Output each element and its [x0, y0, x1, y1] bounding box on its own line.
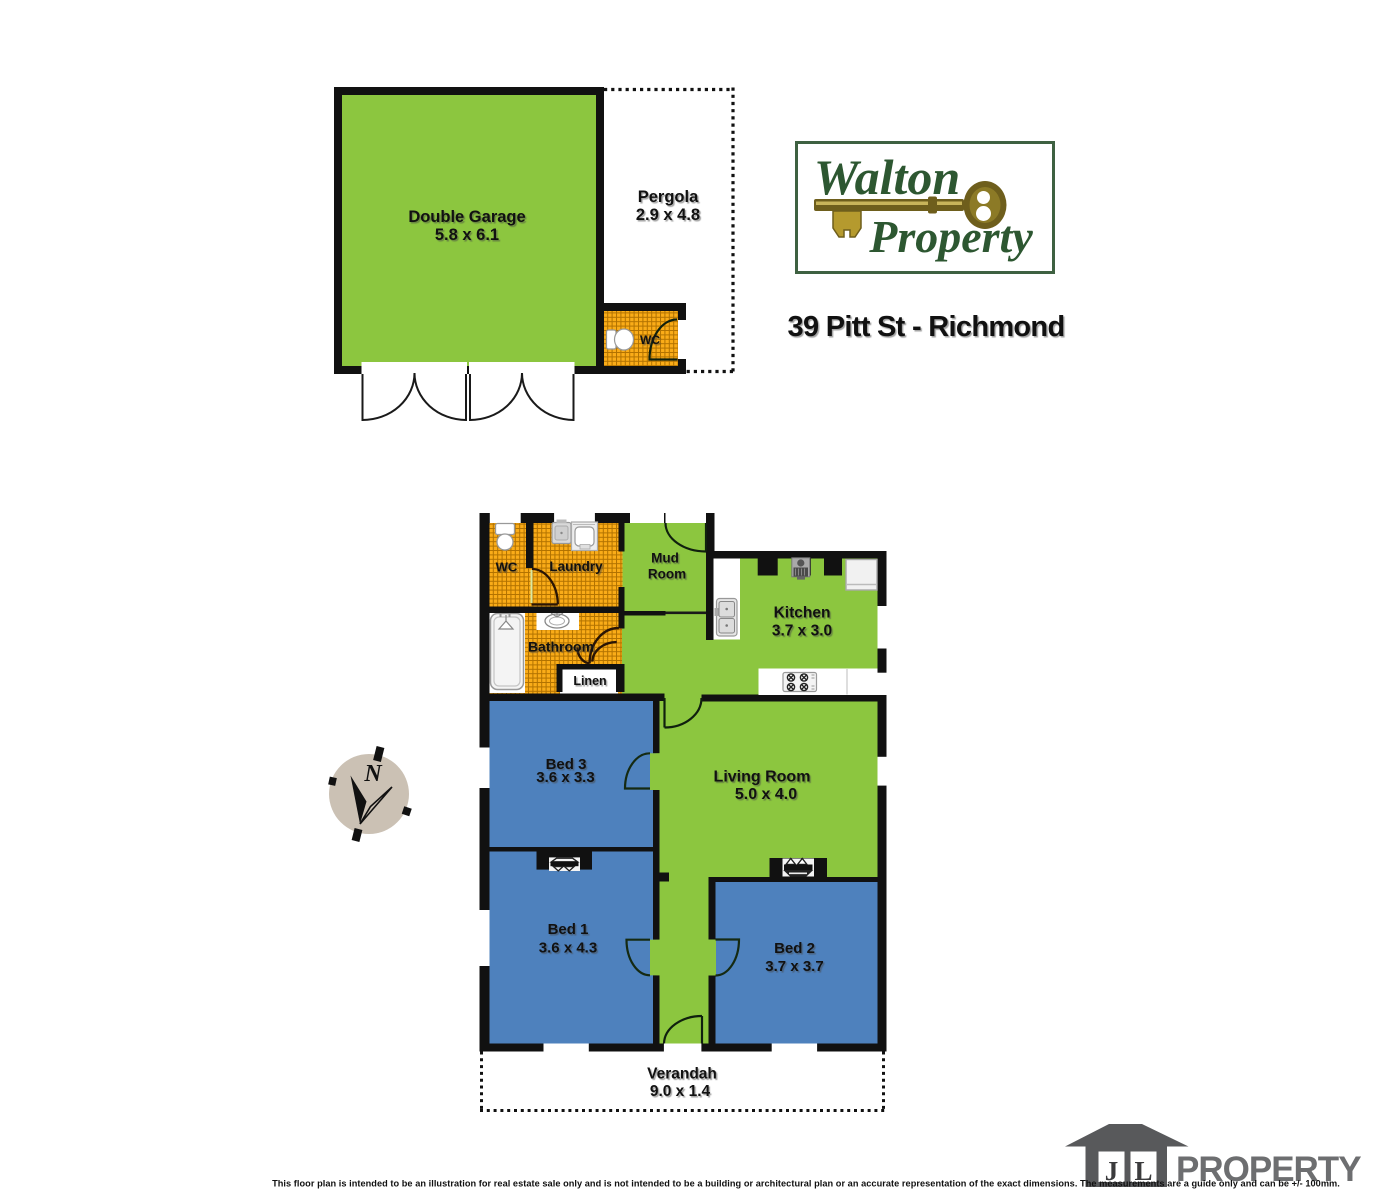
svg-text:3.6 x 4.3: 3.6 x 4.3 [539, 940, 597, 957]
svg-text:5.8 x 6.1: 5.8 x 6.1 [435, 226, 499, 244]
svg-text:Laundry: Laundry [549, 559, 603, 574]
svg-text:3.7 x 3.7: 3.7 x 3.7 [765, 958, 823, 975]
svg-text:Bathroom: Bathroom [528, 639, 594, 655]
svg-text:2.9 x 4.8: 2.9 x 4.8 [636, 206, 700, 224]
svg-text:5.0 x 4.0: 5.0 x 4.0 [735, 786, 797, 803]
svg-text:Verandah: Verandah [647, 1066, 717, 1083]
svg-text:Room: Room [648, 567, 686, 582]
svg-text:Double Garage: Double Garage [408, 208, 525, 226]
svg-text:Bed 1: Bed 1 [548, 921, 589, 938]
svg-text:Linen: Linen [573, 674, 606, 688]
svg-text:WC: WC [496, 560, 518, 575]
svg-text:This floor plan is intended to: This floor plan is intended to be an ill… [272, 1179, 1340, 1189]
svg-text:39 Pitt St - Richmond: 39 Pitt St - Richmond [788, 311, 1065, 343]
svg-text:Property: Property [868, 211, 1033, 262]
svg-text:Mud: Mud [651, 551, 679, 566]
svg-text:WC: WC [640, 333, 660, 347]
svg-text:Living Room: Living Room [714, 769, 811, 786]
svg-text:9.0 x 1.4: 9.0 x 1.4 [650, 1083, 711, 1100]
svg-text:Pergola: Pergola [638, 188, 699, 206]
svg-text:3.7 x 3.0: 3.7 x 3.0 [772, 623, 832, 640]
svg-text:Kitchen: Kitchen [774, 605, 831, 622]
svg-text:N: N [363, 761, 383, 787]
svg-text:Bed 2: Bed 2 [774, 940, 815, 957]
svg-text:Walton: Walton [814, 149, 960, 205]
svg-text:3.6 x 3.3: 3.6 x 3.3 [536, 769, 594, 786]
